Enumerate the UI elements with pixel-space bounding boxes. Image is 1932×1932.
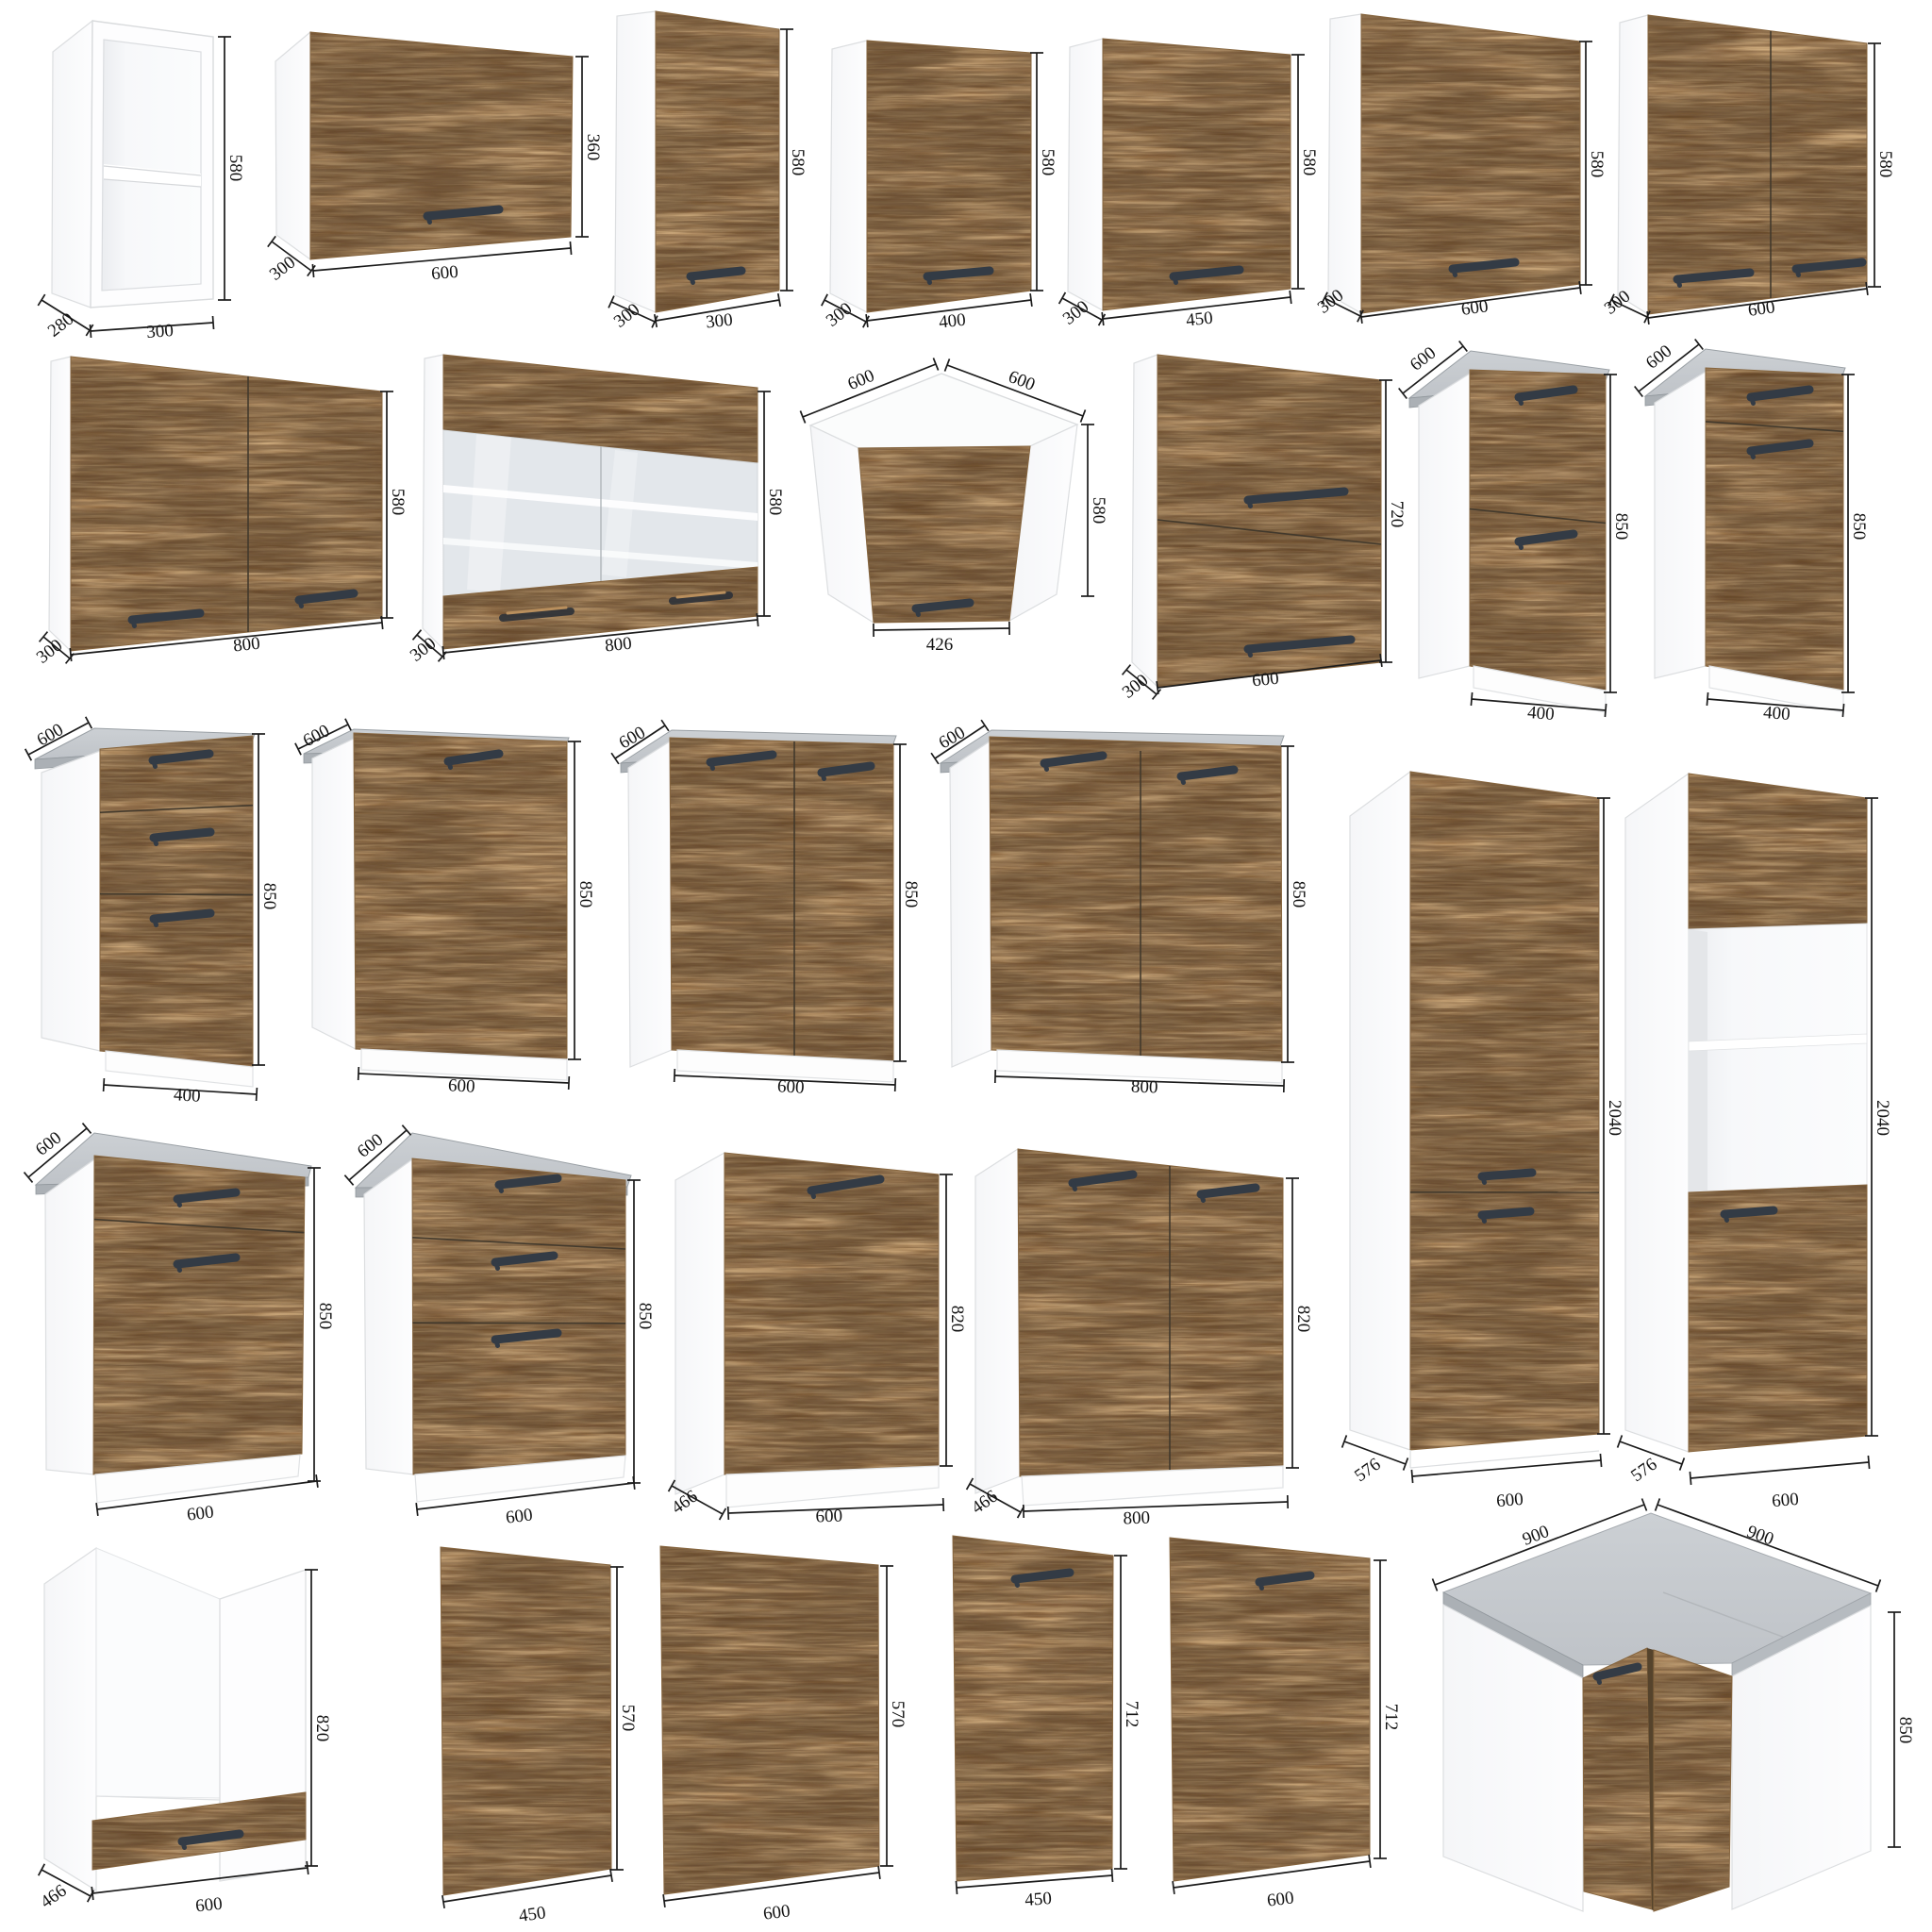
svg-text:600: 600 — [1495, 1490, 1524, 1511]
svg-text:800: 800 — [604, 634, 633, 657]
svg-text:850: 850 — [315, 1303, 335, 1330]
svg-text:580: 580 — [1875, 151, 1895, 178]
svg-text:450: 450 — [1024, 1889, 1053, 1910]
svg-text:600: 600 — [1747, 297, 1776, 321]
svg-text:850: 850 — [901, 881, 921, 908]
svg-text:850: 850 — [1289, 881, 1308, 908]
svg-text:720: 720 — [1387, 501, 1407, 528]
svg-text:580: 580 — [788, 149, 808, 176]
svg-text:450: 450 — [518, 1903, 547, 1926]
svg-text:600: 600 — [430, 262, 458, 284]
svg-text:820: 820 — [1293, 1306, 1313, 1333]
svg-text:850: 850 — [1895, 1717, 1915, 1744]
svg-text:360: 360 — [583, 134, 603, 161]
svg-text:600: 600 — [1460, 296, 1490, 320]
svg-text:850: 850 — [259, 883, 279, 910]
svg-text:400: 400 — [1526, 703, 1555, 724]
svg-text:600: 600 — [777, 1076, 806, 1097]
svg-text:712: 712 — [1381, 1704, 1401, 1731]
svg-text:800: 800 — [1123, 1508, 1150, 1529]
svg-text:2040: 2040 — [1605, 1100, 1624, 1136]
svg-text:800: 800 — [1131, 1077, 1158, 1098]
svg-text:850: 850 — [575, 881, 595, 908]
svg-text:580: 580 — [388, 489, 408, 516]
svg-text:820: 820 — [947, 1306, 967, 1333]
svg-text:600: 600 — [448, 1075, 476, 1096]
svg-text:600: 600 — [815, 1507, 842, 1527]
svg-text:712: 712 — [1122, 1701, 1141, 1728]
svg-text:600: 600 — [194, 1894, 224, 1917]
svg-text:600: 600 — [1771, 1490, 1799, 1511]
svg-text:600: 600 — [1251, 669, 1280, 691]
svg-text:2040: 2040 — [1873, 1100, 1892, 1136]
svg-text:850: 850 — [1611, 513, 1631, 541]
svg-text:580: 580 — [1038, 149, 1058, 176]
svg-text:800: 800 — [232, 634, 261, 657]
svg-text:400: 400 — [174, 1085, 202, 1106]
svg-text:426: 426 — [926, 635, 954, 655]
svg-text:570: 570 — [618, 1705, 638, 1732]
svg-text:600: 600 — [505, 1505, 534, 1527]
svg-text:300: 300 — [705, 310, 734, 333]
svg-text:300: 300 — [146, 321, 175, 342]
svg-text:580: 580 — [1089, 497, 1108, 525]
svg-text:580: 580 — [225, 155, 245, 182]
svg-text:850: 850 — [1849, 513, 1869, 541]
svg-text:600: 600 — [186, 1502, 215, 1524]
svg-text:600: 600 — [762, 1901, 791, 1924]
svg-text:400: 400 — [1762, 703, 1790, 724]
svg-text:400: 400 — [938, 310, 967, 333]
svg-text:600: 600 — [1266, 1888, 1295, 1910]
svg-text:580: 580 — [765, 489, 785, 516]
svg-text:850: 850 — [635, 1303, 655, 1330]
svg-text:820: 820 — [312, 1715, 332, 1742]
svg-text:450: 450 — [1185, 308, 1214, 331]
svg-text:570: 570 — [888, 1701, 908, 1728]
svg-text:580: 580 — [1587, 151, 1607, 178]
svg-text:580: 580 — [1299, 149, 1319, 176]
